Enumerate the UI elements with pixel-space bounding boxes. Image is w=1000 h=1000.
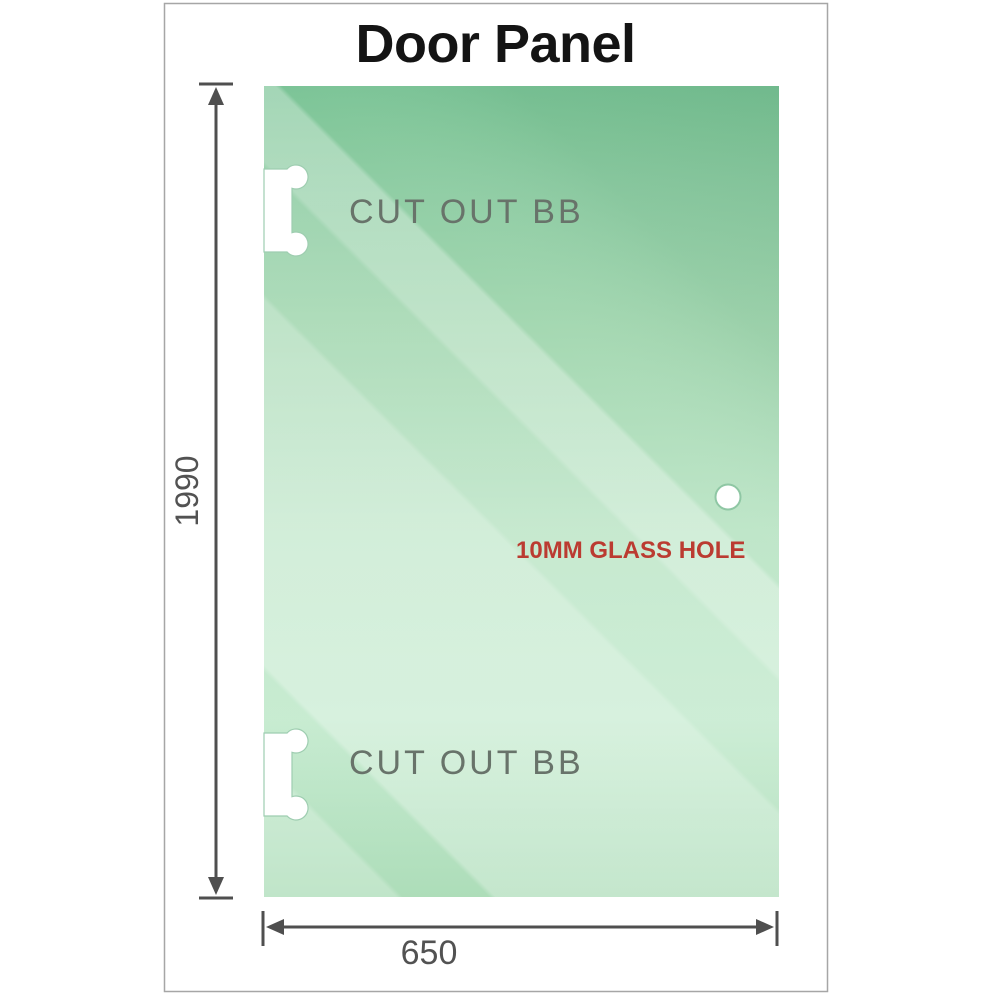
arrow-right-icon bbox=[756, 919, 774, 935]
glass-hole-label: 10MM GLASS HOLE bbox=[516, 539, 745, 563]
width-dimension-line bbox=[263, 911, 777, 946]
arrow-left-icon bbox=[266, 919, 284, 935]
width-dimension-label: 650 bbox=[354, 936, 504, 970]
door-panel-drawing bbox=[0, 0, 1000, 1000]
cutout-label-bottom: CUT OUT BB bbox=[349, 746, 584, 780]
arrow-down-icon bbox=[208, 877, 224, 895]
glass-hole bbox=[716, 485, 741, 510]
diagram-canvas: Door Panel CUT OUT BB CUT OUT BB 10MM GL… bbox=[0, 0, 1000, 1000]
height-dimension-label: 1990 bbox=[171, 455, 203, 526]
arrow-up-icon bbox=[208, 87, 224, 105]
cutout-label-top: CUT OUT BB bbox=[349, 195, 584, 229]
diagram-title: Door Panel bbox=[164, 17, 827, 71]
